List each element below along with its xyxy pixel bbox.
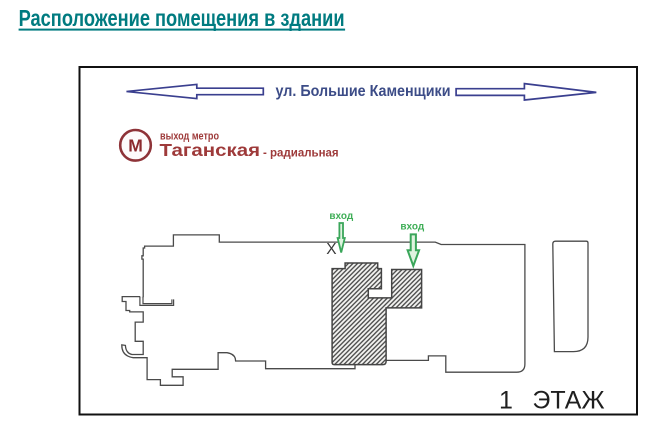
svg-text:вход: вход [329, 211, 353, 222]
svg-text:Таганская: Таганская [160, 140, 261, 160]
svg-text:ул. Большие Каменщики: ул. Большие Каменщики [276, 83, 451, 100]
svg-text:М: М [128, 136, 143, 156]
svg-text:X: X [326, 241, 337, 258]
svg-text:вход: вход [400, 221, 424, 232]
svg-text:- радиальная: - радиальная [263, 147, 339, 159]
svg-text:Расположение помещения в здани: Расположение помещения в здании [19, 5, 345, 31]
svg-text:ЭТАЖ: ЭТАЖ [532, 387, 604, 415]
svg-text:1: 1 [499, 387, 513, 415]
